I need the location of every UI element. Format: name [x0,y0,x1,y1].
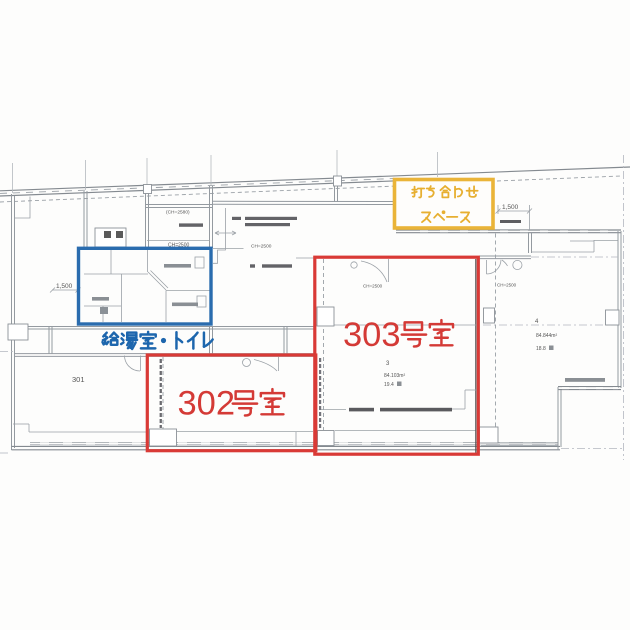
svg-text:302: 302 [178,385,236,423]
svg-text:18.8: 18.8 [536,346,546,352]
svg-text:CH=2500: CH=2500 [497,283,517,288]
svg-text:1,500: 1,500 [502,204,519,211]
svg-text:CH=2500: CH=2500 [363,284,383,289]
svg-text:1,500: 1,500 [56,283,73,290]
svg-text:(CH=2580): (CH=2580) [166,210,190,216]
svg-text:CH=2500: CH=2500 [251,244,272,250]
svg-text:19.4: 19.4 [384,382,394,388]
svg-text:301: 301 [72,375,85,384]
svg-text:84.844m²: 84.844m² [536,333,557,339]
svg-text:303: 303 [343,316,401,354]
svg-text:84.103m²: 84.103m² [384,373,405,379]
